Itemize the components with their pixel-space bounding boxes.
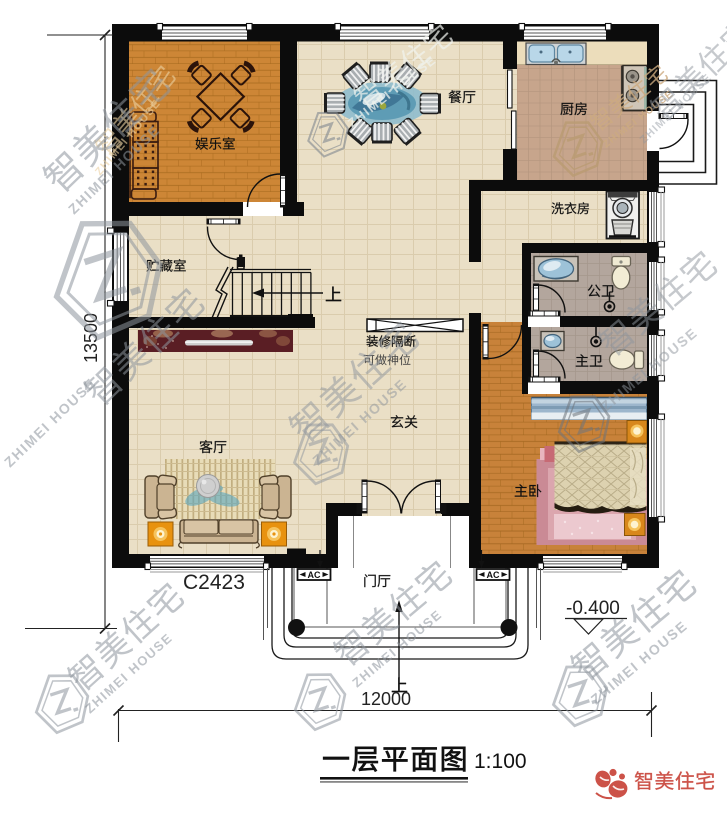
svg-text:12000: 12000	[361, 689, 411, 709]
svg-text:AC: AC	[308, 570, 321, 580]
svg-text:AC: AC	[487, 570, 500, 580]
svg-text:C2423: C2423	[183, 571, 245, 594]
svg-text:-0.400: -0.400	[566, 598, 620, 619]
svg-text:1:100: 1:100	[474, 750, 527, 773]
